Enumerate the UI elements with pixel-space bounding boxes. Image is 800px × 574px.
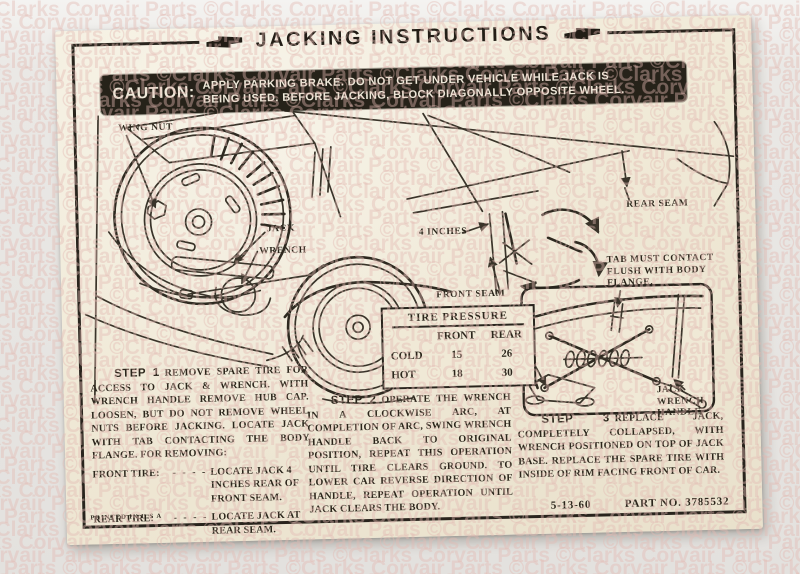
jack-label: JACK <box>267 224 296 236</box>
hot-front-value: 18 <box>430 367 484 380</box>
part-number: PART NO. 3785532 <box>625 496 730 510</box>
date-and-part-number: 5-13-60 PART NO. 3785532 <box>551 496 730 512</box>
front-seam-label: FRONT SEAM <box>436 289 505 302</box>
col-header-front: FRONT <box>429 329 483 342</box>
row-label-cold: COLD <box>384 350 430 363</box>
four-inches-label: 4 INCHES <box>419 227 468 240</box>
chevrolet-bowtie-icon <box>564 26 600 40</box>
tire-pressure-table: TIRE PRESSURE FRONT REAR COLD 15 26 HOT … <box>381 304 537 390</box>
cold-rear-value: 26 <box>484 347 530 360</box>
title-row: JACKING INSTRUCTIONS <box>71 18 735 57</box>
front-tire-text: LOCATE JACK 4 INCHES REAR OF FRONT SEAM. <box>210 463 311 506</box>
step-2-text: OPERATE THE WRENCH IN A CLOCKWISE ARC, A… <box>307 392 513 516</box>
tire-pressure-title: TIRE PRESSURE <box>392 309 524 328</box>
wing-nut-drawing <box>147 201 166 219</box>
title-rule-left <box>71 41 199 47</box>
revision-date: 5-13-60 <box>551 499 592 512</box>
page-title: JACKING INSTRUCTIONS <box>249 22 557 52</box>
step-2-block: STEP 2OPERATE THE WRENCH IN A CLOCKWISE … <box>307 391 514 517</box>
rear-seam-label: REAR SEAM <box>626 198 688 211</box>
rear-tire-dots: - - - - <box>173 511 212 539</box>
cold-front-value: 15 <box>430 348 484 361</box>
step-2-label: STEP 2 <box>331 394 382 407</box>
col-header-rear: REAR <box>483 328 529 341</box>
jacking-instructions-decal: JACKING INSTRUCTIONS CAUTION: APPLY PARK… <box>55 15 763 545</box>
front-tire-row: FRONT TIRE: - - - - LOCATE JACK 4 INCHES… <box>92 463 311 509</box>
wing-nut-label: WING NUT <box>118 123 173 136</box>
title-rule-right <box>607 28 735 34</box>
chevrolet-bowtie-icon <box>206 35 242 49</box>
front-tire-dots: - - - - <box>172 465 211 506</box>
step-3-label: STEP 3 <box>541 412 615 426</box>
photo-of-decal: { "photo": { "watermark_text": "©Clarks … <box>0 0 800 574</box>
front-tire-label: FRONT TIRE: <box>92 466 173 508</box>
row-label-hot: HOT <box>384 369 430 382</box>
hot-rear-value: 30 <box>484 366 530 379</box>
tab-contact-note: TAB MUST CONTACT FLUSH WITH BODY FLANGE. <box>606 253 714 290</box>
decal-border-frame: JACKING INSTRUCTIONS CAUTION: APPLY PARK… <box>71 31 746 529</box>
wrench-label: WRENCH <box>259 245 307 258</box>
step-1-label: STEP 1 <box>114 367 165 380</box>
caution-label: CAUTION: <box>100 84 203 104</box>
jack-operation-drawing <box>462 188 631 295</box>
rear-tire-text: LOCATE JACK AT REAR SEAM. <box>211 508 312 537</box>
step-3-block: STEP 3REPLACE JACK, COMPLETELY COLLAPSED… <box>517 410 725 482</box>
